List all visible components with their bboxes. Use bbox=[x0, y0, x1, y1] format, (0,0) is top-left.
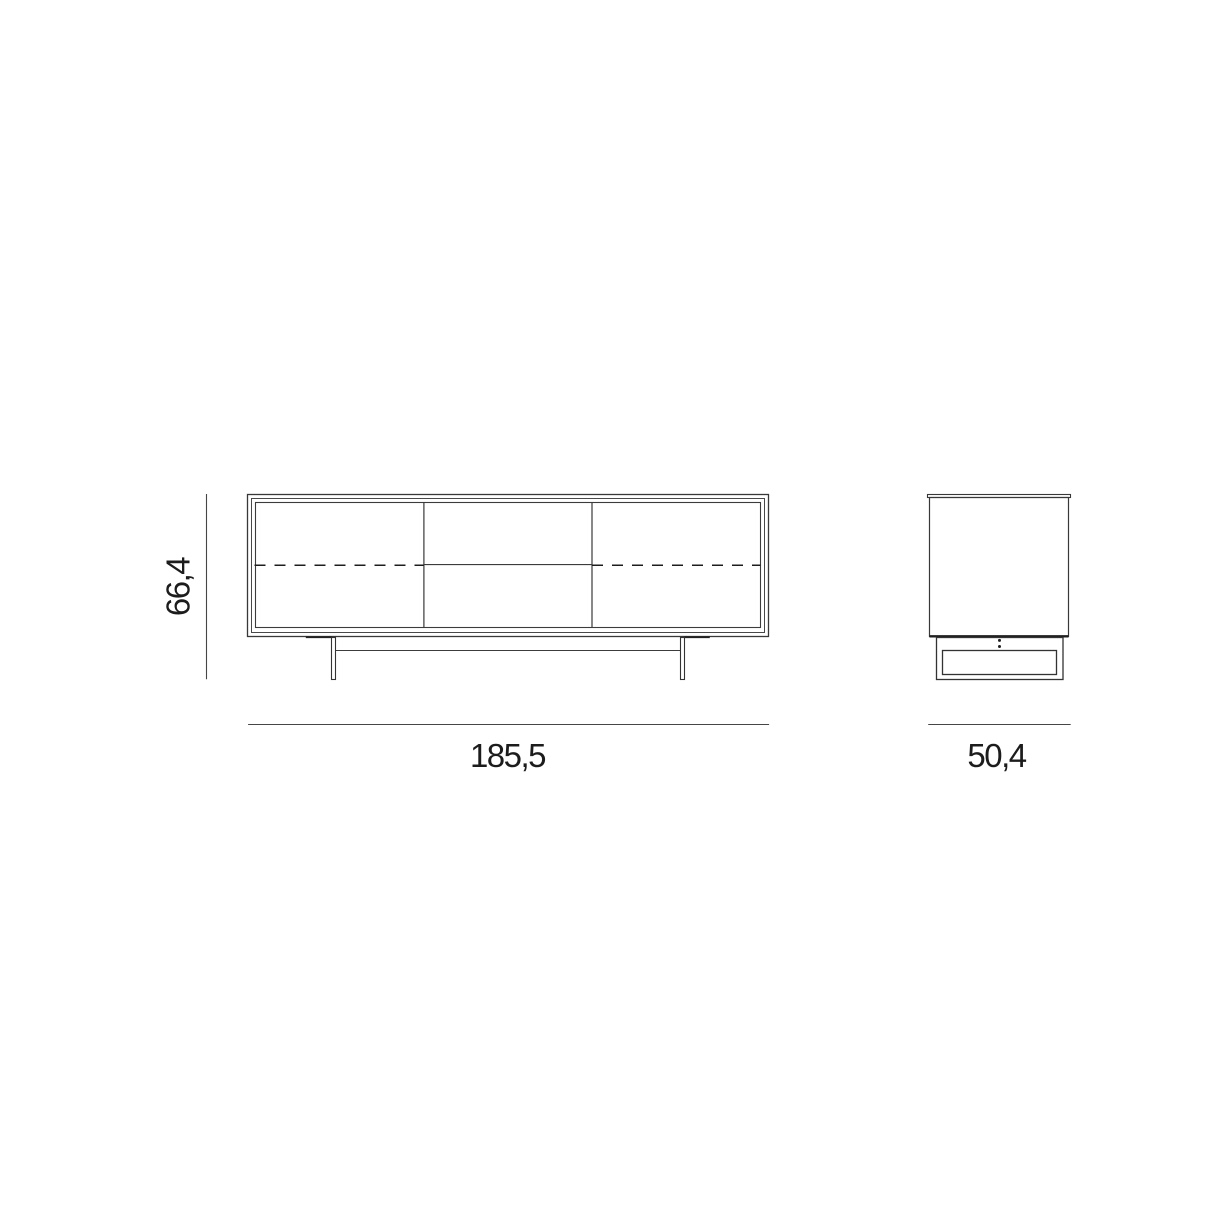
svg-text:66,4: 66,4 bbox=[160, 557, 197, 616]
svg-text:50,4: 50,4 bbox=[967, 737, 1026, 774]
svg-text:185,5: 185,5 bbox=[470, 737, 545, 774]
